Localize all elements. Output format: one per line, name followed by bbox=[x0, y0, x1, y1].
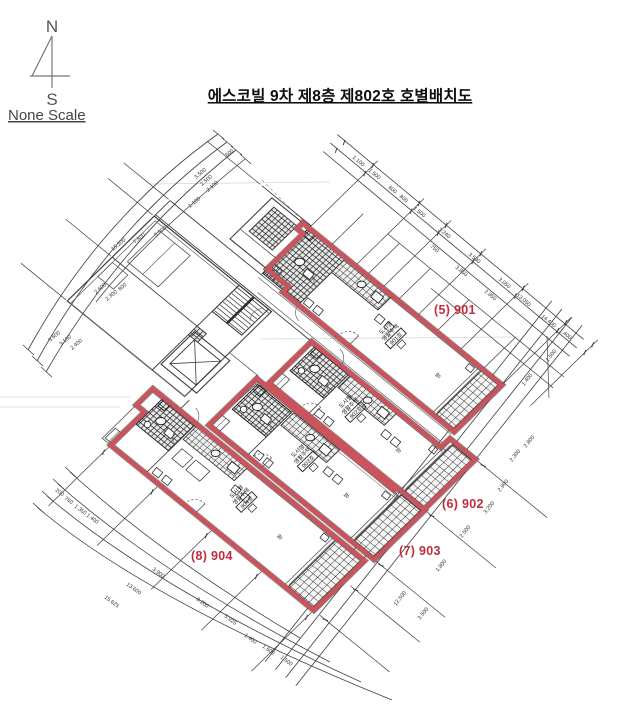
svg-text:(5) 901: (5) 901 bbox=[434, 303, 476, 317]
svg-text:에스코빌 9차 제8층 제802호 호별배치도: 에스코빌 9차 제8층 제802호 호별배치도 bbox=[208, 87, 473, 105]
svg-text:(6) 902: (6) 902 bbox=[442, 497, 484, 511]
svg-text:N: N bbox=[46, 17, 58, 36]
svg-text:None Scale: None Scale bbox=[8, 107, 86, 124]
svg-text:(8) 904: (8) 904 bbox=[191, 549, 233, 563]
svg-text:(7) 903: (7) 903 bbox=[399, 544, 441, 558]
